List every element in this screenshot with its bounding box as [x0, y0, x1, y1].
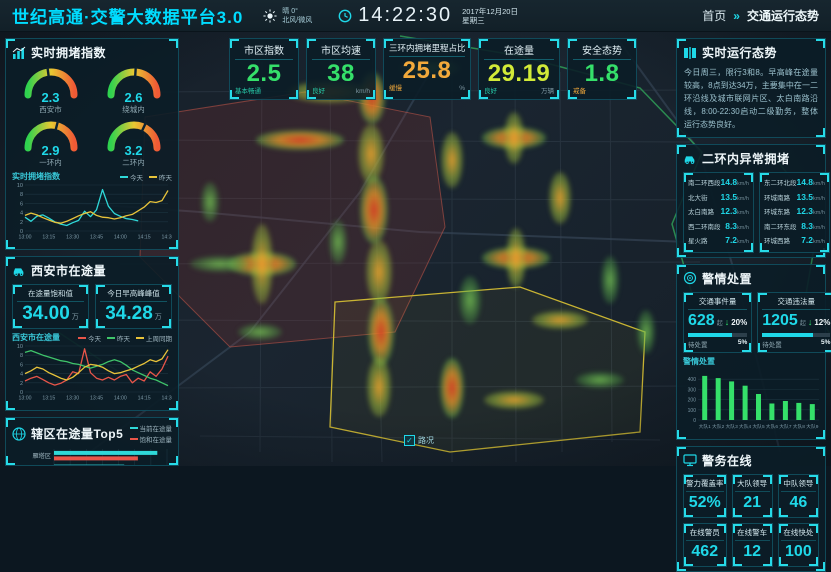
kpi-label: 在途量: [484, 42, 554, 60]
svg-text:14:30: 14:30: [162, 235, 172, 241]
status-summary-text: 今日周三，限行3和8。早高峰在途量较高，8点到达34万，主要集中在一二环沿线及城…: [683, 64, 819, 133]
legend-item[interactable]: 今天: [78, 333, 101, 343]
kpi-status: 戒备: [573, 88, 586, 96]
current-time: 14:22:30: [358, 4, 452, 27]
weather-widget: 晴 0° 北风/微风: [263, 7, 312, 25]
stat-morning-peak: 今日早高峰峰值 34.28万: [95, 284, 172, 329]
gauge-label: 西安市: [39, 105, 62, 114]
stat-unit: 万: [155, 314, 162, 321]
svg-text:大队9: 大队9: [806, 423, 819, 430]
abnormal-road-row: 南二环西段 14.8km/h: [688, 176, 749, 191]
road-speed: 12.3km/h: [796, 205, 824, 220]
kpi-unit: %: [459, 85, 465, 93]
gauge-label: 一环内: [39, 158, 62, 167]
police-stat-card: 在线快处 100: [778, 523, 819, 567]
svg-text:大队3: 大队3: [725, 423, 738, 430]
kpi-status: 缓慢: [389, 85, 402, 93]
panel-onroad-volume: 西安市在途量 在途量饱和值 34.00万 今日早高峰峰值 34.28万 西安市在…: [5, 256, 179, 411]
legend-item[interactable]: 昨天: [107, 333, 130, 343]
svg-text:6: 6: [20, 201, 23, 207]
panel-title: 实时运行态势: [702, 44, 777, 61]
svg-text:13:30: 13:30: [66, 235, 79, 241]
gauge-value: 2.6: [124, 91, 142, 104]
pending-value: 5%: [738, 339, 747, 349]
stat-label: 今日早高峰峰值: [100, 288, 167, 302]
road-speed: 13.5km/h: [721, 191, 749, 206]
police-stat-card: 警力覆盖率 52%: [683, 474, 727, 518]
sun-icon: [263, 9, 277, 23]
bar-chart-icon: [12, 46, 26, 60]
police-stat-value: 21: [735, 492, 770, 514]
kpi-onroad-volume: 在途量 29.19 良好万辆: [478, 38, 560, 100]
breadcrumb: 首页 » 交通运行态势: [702, 7, 819, 24]
progress-track: [688, 333, 747, 337]
svg-text:14:00: 14:00: [114, 396, 127, 402]
congestion-trend-chart: 0 2 4 6 8 1013:0013:1513:3013:4514:0014:…: [12, 182, 172, 245]
app-header: 世纪高通·交警大数据平台3.0 晴 0° 北风/微风 14:22:30 2017…: [0, 0, 831, 32]
road-name: 北大街: [688, 193, 708, 206]
road-speed: 14.8km/h: [721, 176, 749, 191]
nav-home[interactable]: 首页: [702, 7, 726, 24]
incident-delta: 20%: [731, 318, 747, 327]
pulse-icon: [683, 46, 697, 60]
incident-unit: 起: [800, 318, 806, 327]
abnormal-road-row: 西二环南段 8.3km/h: [688, 220, 749, 235]
svg-text:13:00: 13:00: [19, 235, 32, 241]
arrow-down-icon: ↓: [725, 317, 730, 327]
abnormal-road-row: 南二环东段 8.3km/h: [764, 220, 825, 235]
abnormal-list-right: 东二环北段 14.8km/h 环城南路 13.5km/h 环城东路 12.3km…: [759, 172, 830, 253]
road-speed: 8.3km/h: [725, 220, 749, 235]
svg-text:13:15: 13:15: [42, 235, 55, 241]
svg-text:4: 4: [20, 372, 23, 378]
kpi-label: 三环内拥堵里程占比: [389, 42, 465, 57]
incident-unit: 起: [717, 318, 723, 327]
svg-text:大队4: 大队4: [739, 423, 752, 430]
gauge-label: 绕城内: [122, 105, 145, 114]
svg-text:大队2: 大队2: [712, 423, 725, 430]
svg-text:10: 10: [17, 344, 23, 350]
abnormal-road-row: 东二环北段 14.8km/h: [764, 176, 825, 191]
incident-delta: 12%: [814, 318, 830, 327]
abnormal-road-row: 环城西路 7.2km/h: [764, 234, 825, 249]
gauge-ring-road: 2.6 绕城内: [95, 64, 172, 117]
police-stat-value: 46: [781, 492, 816, 514]
car-icon: [683, 152, 697, 166]
gauge-value: 2.3: [41, 91, 59, 104]
panel-congestion-index: 实时拥堵指数 2.3 西安市 2.6 绕城内 2.9 一环内 3.2 二环内 实…: [5, 38, 179, 250]
kpi-value: 25.8: [389, 57, 465, 85]
weather-condition: 晴 0°: [282, 7, 312, 16]
svg-text:13:45: 13:45: [90, 396, 103, 402]
kpi-label: 市区均速: [312, 42, 370, 60]
svg-text:14:30: 14:30: [162, 396, 172, 402]
kpi-label: 安全态势: [573, 42, 631, 60]
panel-title: 警情处置: [702, 270, 752, 287]
police-stat-card: 在线警车 12: [732, 523, 773, 567]
gauge-first-ring: 2.9 一环内: [12, 117, 89, 170]
road-name: 星火路: [688, 236, 708, 249]
police-stat-label: 在线警员: [686, 527, 724, 541]
svg-text:13:00: 13:00: [19, 396, 32, 402]
chart-title: 实时拥堵指数: [12, 171, 60, 182]
svg-text:4: 4: [20, 211, 23, 217]
svg-text:300: 300: [688, 387, 697, 393]
checkbox-icon[interactable]: ✓: [404, 435, 415, 446]
progress-track: [762, 333, 830, 337]
stat-unit: 万: [72, 314, 79, 321]
panel-incident-handling: 警情处置 交通事件量 628 起 ↓ 20% 待处置 5% 交通违法量: [676, 264, 826, 440]
kpi-value: 1.8: [573, 60, 631, 88]
district-top5-chart: 0 2 4 6 8 10 12 14雁塔区未央区莲湖区浐灞生态区: [12, 447, 172, 466]
svg-text:2: 2: [20, 381, 23, 387]
abnormal-road-row: 环城南路 13.5km/h: [764, 191, 825, 206]
pending-label: 待处置: [762, 339, 782, 349]
gauge-xian: 2.3 西安市: [12, 64, 89, 117]
kpi-safety: 安全态势 1.8 戒备: [567, 38, 637, 100]
map-traffic-toggle[interactable]: ✓ 路况: [404, 435, 434, 446]
road-name: 环城东路: [764, 207, 790, 220]
kpi-congestion-ratio: 三环内拥堵里程占比 25.8 缓慢%: [383, 38, 471, 100]
road-name: 东二环北段: [764, 178, 797, 191]
kpi-value: 38: [312, 60, 370, 88]
kpi-unit: km/h: [356, 88, 370, 96]
svg-text:6: 6: [20, 362, 23, 368]
legend-item[interactable]: 上周同期: [136, 333, 172, 343]
svg-text:大队5: 大队5: [752, 423, 765, 430]
svg-text:10: 10: [17, 183, 23, 189]
gauge-label: 二环内: [122, 158, 145, 167]
road-name: 南二环东段: [764, 222, 797, 235]
kpi-value: 29.19: [484, 60, 554, 88]
monitor-icon: [683, 453, 697, 467]
arrow-down-icon: ↓: [808, 317, 813, 327]
clock-icon: [338, 9, 352, 23]
police-stat-card: 大队领导 21: [732, 474, 773, 518]
svg-text:400: 400: [688, 377, 697, 383]
stat-saturation: 在途量饱和值 34.00万: [12, 284, 89, 329]
legend-item[interactable]: 饱和在途量: [130, 434, 173, 444]
svg-text:大队7: 大队7: [779, 423, 792, 430]
road-speed: 8.3km/h: [801, 220, 825, 235]
police-stat-label: 大队领导: [735, 478, 770, 492]
abnormal-road-row: 星火路 7.2km/h: [688, 234, 749, 249]
progress-fill: [688, 333, 732, 337]
svg-text:8: 8: [20, 192, 23, 198]
road-speed: 13.5km/h: [796, 191, 824, 206]
road-speed: 7.2km/h: [801, 234, 825, 249]
road-speed: 14.8km/h: [796, 176, 824, 191]
nav-current-page[interactable]: 交通运行态势: [747, 7, 819, 24]
progress-fill: [762, 333, 813, 337]
chart-legend: 今天昨天上周同期: [78, 333, 172, 343]
kpi-status: 基本畅通: [235, 88, 261, 96]
road-name: 西二环南段: [688, 222, 721, 235]
kpi-status: 良好: [484, 88, 497, 96]
panel-title: 西安市在途量: [31, 262, 106, 279]
road-name: 南二环西段: [688, 178, 721, 191]
target-icon: [683, 271, 697, 285]
police-stat-value: 52%: [686, 492, 724, 514]
pending-value: 5%: [821, 339, 830, 349]
gauge-grid: 2.3 西安市 2.6 绕城内 2.9 一环内 3.2 二环内: [12, 64, 172, 170]
incident-label: 交通违法量: [762, 296, 830, 310]
gauge-second-ring: 3.2 二环内: [95, 117, 172, 170]
road-name: 环城南路: [764, 193, 790, 206]
police-stat-label: 中队领导: [781, 478, 816, 492]
app-title: 世纪高通·交警大数据平台3.0: [12, 3, 243, 28]
panel-district-top5: 辖区在途量Top5 当前在途量饱和在途量 0 2 4 6 8 10 12 14雁…: [5, 417, 179, 466]
legend-item[interactable]: 今天: [120, 172, 143, 182]
chart-legend: 今天昨天: [120, 172, 172, 182]
panel-realtime-status: 实时运行态势 今日周三，限行3和8。早高峰在途量较高，8点到达34万，主要集中在…: [676, 38, 826, 138]
legend-item[interactable]: 当前在途量: [130, 423, 173, 433]
svg-text:14:15: 14:15: [138, 396, 151, 402]
weather-wind: 北风/微风: [282, 16, 312, 25]
kpi-value: 2.5: [235, 60, 293, 88]
kpi-status: 良好: [312, 88, 325, 96]
svg-text:13:15: 13:15: [42, 396, 55, 402]
stat-value: 34.28: [105, 303, 153, 324]
incident-bar-chart: 0 100 200 300 400 大队1 大队2 大队3 大队4 大队5 大队…: [683, 368, 819, 435]
svg-text:13:45: 13:45: [90, 235, 103, 241]
stat-value: 34.00: [22, 303, 70, 324]
road-speed: 7.2km/h: [725, 234, 749, 249]
incident-label: 交通事件量: [688, 296, 747, 310]
map-yellow-zone-polygon: [330, 287, 645, 452]
stat-label: 在途量饱和值: [17, 288, 84, 302]
pending-label: 待处置: [688, 339, 708, 349]
panel-title: 实时拥堵指数: [31, 44, 106, 61]
police-stat-value: 100: [781, 541, 816, 563]
svg-text:200: 200: [688, 397, 697, 403]
panel-police-online: 警务在线 警力覆盖率 52% 大队领导 21 中队领导 46 在线警员 462 …: [676, 446, 826, 572]
abnormal-road-row: 北大街 13.5km/h: [688, 191, 749, 206]
abnormal-road-row: 太白南路 12.3km/h: [688, 205, 749, 220]
svg-text:8: 8: [20, 353, 23, 359]
kpi-unit: 万辆: [541, 88, 554, 96]
map-toggle-label: 路况: [418, 435, 434, 446]
incident-value: 1205: [762, 312, 798, 330]
road-speed: 12.3km/h: [721, 205, 749, 220]
kpi-city-index: 市区指数 2.5 基本畅通: [229, 38, 299, 100]
police-stats-grid: 警力覆盖率 52% 大队领导 21 中队领导 46 在线警员 462 在线警车 …: [683, 474, 819, 567]
svg-text:2: 2: [20, 220, 23, 226]
globe-icon: [12, 427, 26, 441]
incident-value: 628: [688, 312, 715, 330]
chart-title: 西安市在途量: [12, 332, 60, 343]
gauge-value: 2.9: [41, 144, 59, 157]
current-date: 2017年12月20日: [462, 7, 518, 16]
svg-text:大队6: 大队6: [766, 423, 779, 430]
gauge-value: 3.2: [124, 144, 142, 157]
svg-text:14:00: 14:00: [114, 235, 127, 241]
incident-card-violations: 交通违法量 1205 起 ↓ 12% 待处置 5%: [757, 292, 831, 353]
chart-legend: 当前在途量饱和在途量: [130, 423, 173, 444]
abnormal-road-row: 环城东路 12.3km/h: [764, 205, 825, 220]
kpi-city-speed: 市区均速 38 良好km/h: [306, 38, 376, 100]
svg-text:0: 0: [693, 418, 696, 424]
panel-title: 辖区在途量Top5: [31, 425, 123, 442]
car-icon: [12, 264, 26, 278]
svg-text:大队8: 大队8: [793, 423, 806, 430]
kpi-label: 市区指数: [235, 42, 293, 60]
police-stat-card: 在线警员 462: [683, 523, 727, 567]
police-stat-card: 中队领导 46: [778, 474, 819, 518]
abnormal-list-left: 南二环西段 14.8km/h 北大街 13.5km/h 太白南路 12.3km/…: [683, 172, 754, 253]
chart-title: 警情处置: [683, 356, 819, 367]
road-name: 太白南路: [688, 207, 714, 220]
current-weekday: 星期三: [462, 16, 518, 25]
police-stat-label: 在线警车: [735, 527, 770, 541]
legend-item[interactable]: 昨天: [149, 172, 172, 182]
police-stat-label: 警力覆盖率: [686, 478, 724, 492]
svg-text:大队1: 大队1: [699, 423, 712, 430]
clock-widget: 14:22:30 2017年12月20日 星期三: [338, 4, 518, 27]
svg-text:13:30: 13:30: [66, 396, 79, 402]
svg-text:雁塔区: 雁塔区: [32, 452, 51, 460]
svg-text:14:15: 14:15: [138, 235, 151, 241]
onroad-trend-chart: 0 2 4 6 8 1013:0013:1513:3013:4514:0014:…: [12, 343, 172, 406]
panel-title: 二环内异常拥堵: [702, 150, 790, 167]
incident-card-events: 交通事件量 628 起 ↓ 20% 待处置 5%: [683, 292, 752, 353]
police-stat-value: 12: [735, 541, 770, 563]
panel-abnormal-congestion: 二环内异常拥堵 南二环西段 14.8km/h 北大街 13.5km/h 太白南路…: [676, 144, 826, 258]
svg-text:100: 100: [688, 407, 697, 413]
road-name: 环城西路: [764, 236, 790, 249]
chevron-right-icon: »: [733, 9, 740, 23]
kpi-row: 市区指数 2.5 基本畅通 市区均速 38 良好km/h 三环内拥堵里程占比 2…: [229, 38, 637, 100]
police-stat-value: 462: [686, 541, 724, 563]
police-stat-label: 在线快处: [781, 527, 816, 541]
